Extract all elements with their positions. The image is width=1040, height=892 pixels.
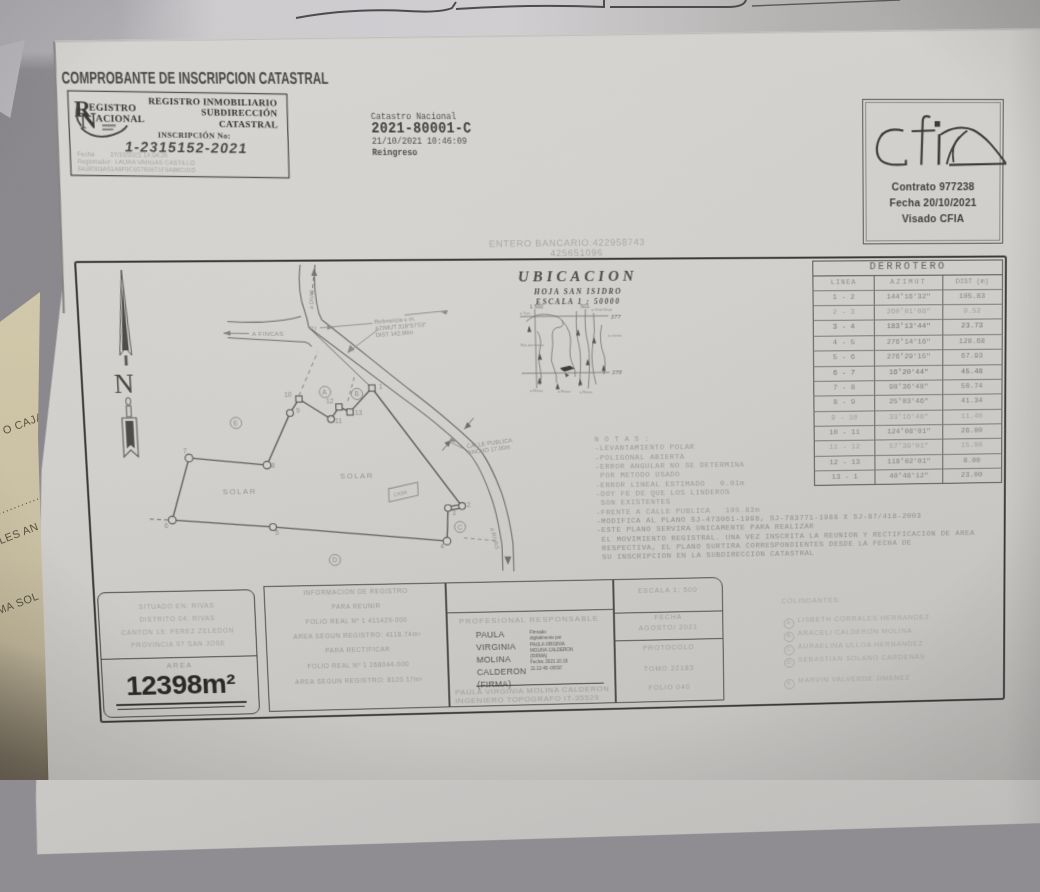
svg-text:377: 377 <box>610 314 621 321</box>
svg-text:E: E <box>233 419 238 427</box>
svg-text:8: 8 <box>271 461 275 469</box>
svg-text:a canas: a canas <box>608 333 622 338</box>
svg-text:13: 13 <box>354 408 362 416</box>
svg-text:4: 4 <box>440 542 444 550</box>
svg-text:CASA: CASA <box>394 490 408 499</box>
svg-text:a RIVAS: a RIVAS <box>488 527 500 550</box>
svg-text:6: 6 <box>164 521 168 529</box>
svg-text:9: 9 <box>296 406 300 414</box>
svg-text:a Rivas: a Rivas <box>530 388 543 393</box>
svg-text:a Tarr.: a Tarr. <box>520 311 531 316</box>
svg-text:N: N <box>113 369 135 399</box>
svg-text:P.I: P.I <box>310 327 317 333</box>
svg-text:B: B <box>354 390 359 398</box>
svg-text:A: A <box>322 388 327 396</box>
svg-text:11: 11 <box>335 417 342 425</box>
svg-text:5: 5 <box>275 528 279 536</box>
svg-text:1: 1 <box>379 382 383 390</box>
svg-text:Rio alemania: Rio alemania <box>521 343 545 348</box>
svg-text:ACIONAL: ACIONAL <box>95 114 145 125</box>
svg-text:7: 7 <box>183 447 187 455</box>
svg-text:C: C <box>457 523 462 531</box>
svg-text:378: 378 <box>612 370 623 377</box>
svg-text:12: 12 <box>326 397 334 405</box>
svg-text:D: D <box>332 556 337 564</box>
svg-text:3: 3 <box>452 509 456 517</box>
svg-text:10: 10 <box>284 390 292 399</box>
svg-text:A FINCAS: A FINCAS <box>252 331 284 338</box>
svg-text:a Gral.Viejo: a Gral.Viejo <box>591 307 612 312</box>
svg-text:a Rivas: a Rivas <box>558 389 571 394</box>
svg-text:SOLAR: SOLAR <box>222 487 257 496</box>
svg-text:EGISTRO: EGISTRO <box>89 103 137 114</box>
svg-text:2: 2 <box>467 501 471 509</box>
svg-text:a DIVIS: a DIVIS <box>309 290 315 310</box>
svg-text:SOLAR: SOLAR <box>340 472 374 481</box>
